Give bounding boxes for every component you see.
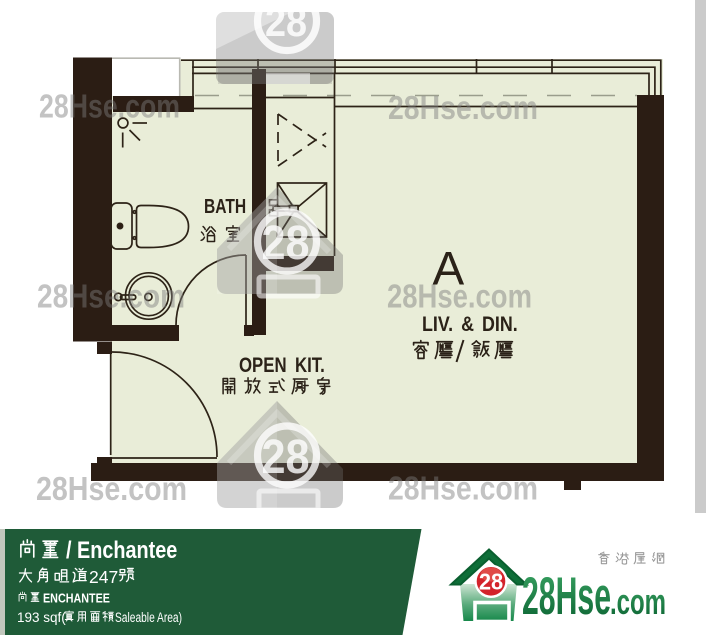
- svg-text:ENCHANTEE: ENCHANTEE: [43, 592, 110, 606]
- svg-text:28Hse.com: 28Hse.com: [37, 278, 185, 315]
- svg-text:Saleable Area): Saleable Area): [115, 610, 182, 625]
- svg-text:28: 28: [261, 216, 309, 270]
- svg-text:/ Enchantee: / Enchantee: [66, 536, 177, 563]
- svg-text:193 sqf(: 193 sqf(: [17, 610, 66, 625]
- svg-text:LIV. & DIN.: LIV. & DIN.: [422, 313, 518, 337]
- svg-text:28: 28: [479, 569, 503, 595]
- svg-text:247: 247: [89, 567, 118, 587]
- svg-text:.com: .com: [610, 581, 666, 622]
- svg-text:28Hse.com: 28Hse.com: [39, 88, 180, 125]
- svg-text:28Hse.com: 28Hse.com: [388, 89, 538, 126]
- svg-text:28: 28: [265, 0, 307, 45]
- svg-text:28Hse.com: 28Hse.com: [36, 470, 187, 507]
- svg-text:28Hse: 28Hse: [522, 567, 611, 626]
- svg-text:OPEN KIT.: OPEN KIT.: [239, 354, 325, 377]
- svg-text:28Hse.com: 28Hse.com: [387, 278, 532, 315]
- svg-text:28Hse.com: 28Hse.com: [388, 470, 538, 507]
- svg-text:BATH: BATH: [204, 195, 246, 217]
